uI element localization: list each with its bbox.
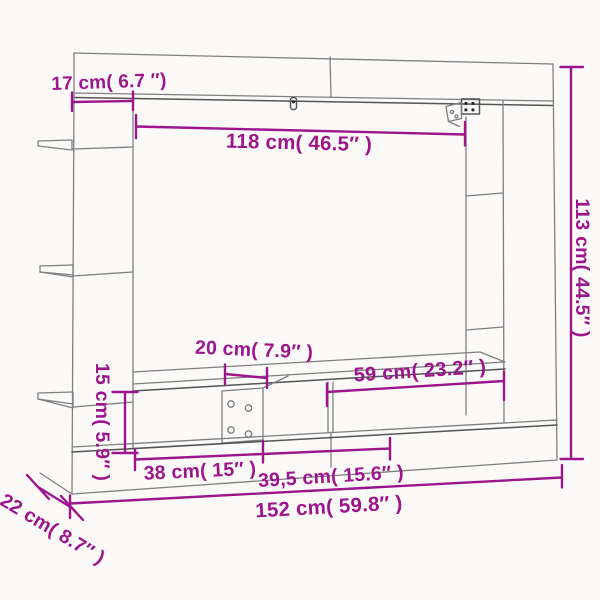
left-shelf-3 [38, 392, 133, 408]
dim-label-bench-opening-height: 15 cm( 5.9″ ) [91, 363, 113, 481]
dim-bench-opening-height: 15 cm( 5.9″ ) [91, 363, 138, 481]
dim-center-bracket-width: 20 cm( 7.9″ ) [195, 337, 314, 388]
right-panel [466, 64, 557, 460]
left-shelf-1 [38, 140, 133, 150]
dim-tv-opening-width: 118 cm( 46.5″ ) [136, 115, 465, 156]
dim-label-right-opening-width: 59 cm( 23.2″ ) [353, 356, 487, 387]
dim-label-overall-width: 152 cm( 59.8″ ) [255, 491, 403, 522]
screw-hole [245, 405, 251, 411]
dim-overall-depth: 22 cm( 8.7″ ) [0, 475, 109, 569]
furniture-dimension-diagram: 17 cm( 6.7 ″) 118 cm( 46.5″ ) 113 cm( 44… [0, 0, 600, 600]
dim-right-opening-width: 59 cm( 23.2″ ) [327, 356, 504, 406]
dim-label-overall-height: 113 cm( 44.5″ ) [571, 198, 593, 337]
dim-label-tv-opening-width: 118 cm( 46.5″ ) [226, 130, 373, 157]
keyhole-hanger-icon [291, 98, 297, 110]
left-shelf-2 [40, 265, 133, 277]
dim-top-depth: 17 cm( 6.7 ″) [51, 70, 167, 111]
screw-hole [245, 431, 251, 437]
dim-overall-height: 113 cm( 44.5″ ) [561, 67, 593, 459]
left-panel [38, 93, 133, 494]
dim-label-top-depth: 17 cm( 6.7 ″) [51, 70, 167, 95]
screw-hole [228, 401, 234, 407]
dim-label-left-opening-width: 38 cm( 15″ ) [143, 458, 256, 485]
furniture-outline [38, 53, 557, 494]
dim-label-center-bracket-width: 20 cm( 7.9″ ) [195, 337, 314, 364]
bench-divider [328, 382, 333, 467]
screw-hole [228, 427, 234, 433]
screw-plate [222, 376, 288, 443]
